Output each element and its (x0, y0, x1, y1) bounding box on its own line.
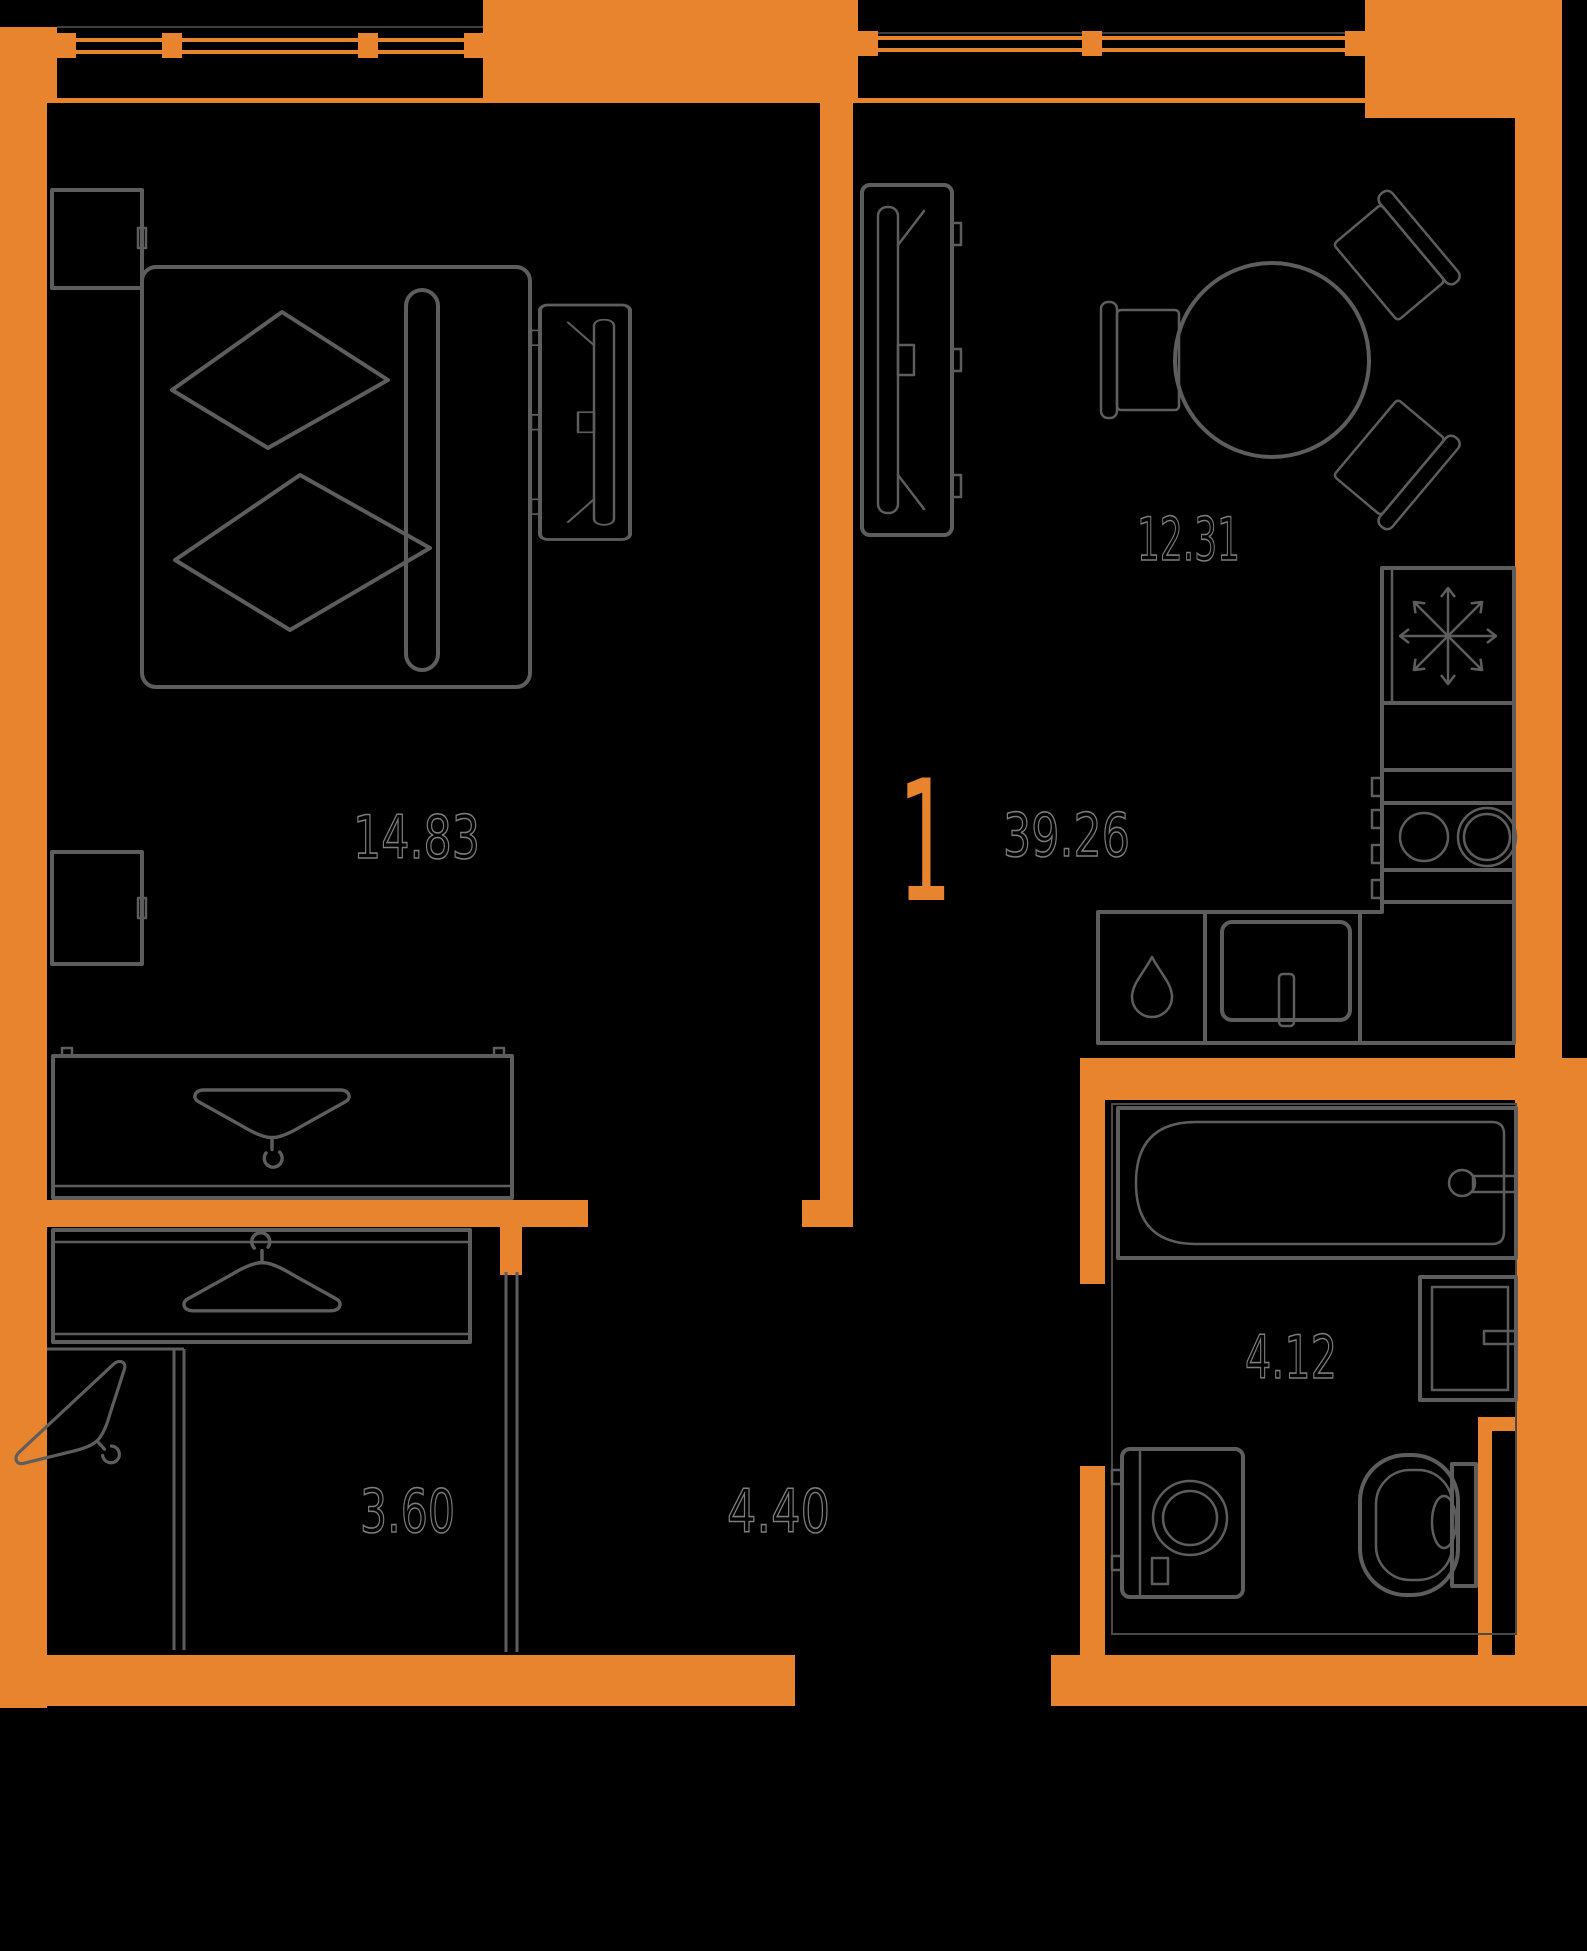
pillow (175, 475, 430, 630)
dining-table-set (1101, 188, 1463, 532)
wardrobe-closet (53, 1230, 470, 1342)
snowflake-icon (1400, 588, 1496, 684)
bedroom-door-jamb (588, 1198, 597, 1229)
blanket-roll (406, 290, 438, 670)
washing-machine (1112, 1449, 1243, 1597)
radiator-icon (531, 305, 630, 540)
nightstand (52, 190, 142, 288)
bathtub (1118, 1108, 1516, 1258)
chair (1328, 188, 1462, 327)
chair (1328, 393, 1462, 532)
total-area: 39.26 (1003, 801, 1130, 871)
bathroom-door-jamb (1078, 1284, 1107, 1290)
kitchen-sink (1222, 922, 1350, 1026)
floor-plan: 14.83 12.31 1 39.26 4.12 3.60 4.40 (0, 0, 1587, 1951)
burner-icon (1400, 813, 1448, 861)
room-area-closet: 3.60 (360, 1477, 455, 1547)
hanger-icon (195, 1090, 349, 1167)
burner-icon (1458, 808, 1516, 866)
closet-hallway (13, 1230, 517, 1652)
round-table (1175, 263, 1369, 457)
room-area-kitchen-living: 12.31 (1137, 505, 1240, 575)
entrance-door-jamb (795, 1652, 802, 1710)
toilet (1360, 1455, 1476, 1595)
unit-number: 1 (898, 744, 952, 940)
room-area-bedroom: 14.83 (353, 803, 480, 873)
room-area-bathroom: 4.12 (1245, 1323, 1337, 1393)
kitchen-living-furniture (862, 185, 1516, 1043)
kitchen-counter (1098, 568, 1516, 1043)
wardrobe-bedroom (53, 1048, 512, 1198)
faucet-icon (1484, 1331, 1516, 1344)
nightstand (52, 852, 142, 964)
room-area-hallway: 4.40 (727, 1477, 830, 1547)
floor-plan-canvas: 14.83 12.31 1 39.26 4.12 3.60 4.40 (0, 0, 1587, 1951)
washbasin (1420, 1277, 1516, 1400)
walls (0, 0, 1587, 1710)
pillow (172, 312, 388, 448)
hanger-icon (184, 1233, 340, 1311)
bedroom-furniture (52, 190, 630, 1198)
radiator-icon (862, 185, 961, 535)
faucet-icon (1449, 1170, 1475, 1196)
water-drop-icon (1132, 957, 1172, 1017)
bedroom-window (57, 0, 483, 103)
bed (142, 267, 530, 687)
chair (1101, 302, 1179, 418)
kitchen-window (858, 0, 1365, 103)
